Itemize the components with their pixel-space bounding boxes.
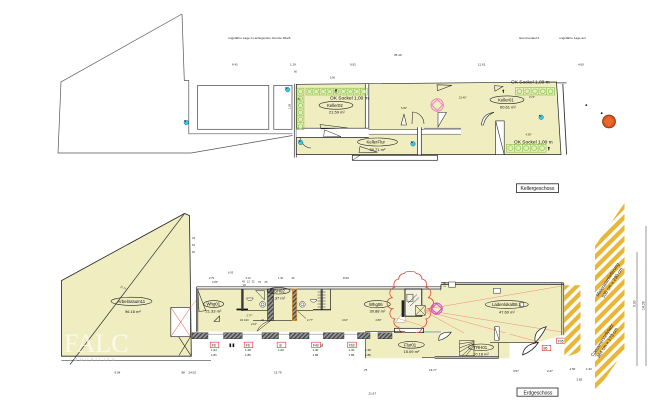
- svg-text:5.90: 5.90: [330, 75, 336, 79]
- svg-text:2.75: 2.75: [209, 276, 215, 280]
- svg-text:1.32: 1.32: [586, 367, 592, 371]
- svg-text:1.00: 1.00: [278, 348, 284, 352]
- svg-text:Whg06: Whg06: [369, 302, 383, 307]
- svg-text:3.13: 3.13: [246, 276, 252, 280]
- svg-text:2.30: 2.30: [443, 281, 447, 287]
- svg-text:Grenzverlauf lt.: Grenzverlauf lt.: [519, 36, 540, 40]
- svg-text:Ladenlokal06.1: Ladenlokal06.1: [492, 302, 522, 307]
- svg-text:30.88 m²: 30.88 m²: [370, 309, 386, 314]
- svg-text:9.30: 9.30: [632, 300, 636, 307]
- svg-text:11.61: 11.61: [478, 62, 486, 66]
- svg-text:FALC: FALC: [64, 329, 129, 358]
- svg-text:21.33 m²: 21.33 m²: [206, 308, 222, 313]
- svg-text:Arbeitsraum11: Arbeitsraum11: [118, 299, 146, 304]
- svg-text:6.41: 6.41: [232, 62, 238, 66]
- svg-text:OK Sockel 1,00 m: OK Sockel 1,00 m: [514, 139, 553, 145]
- svg-text:3.57: 3.57: [513, 369, 519, 373]
- svg-text:47.60 m²: 47.60 m²: [499, 309, 515, 314]
- svg-text:3.10°: 3.10°: [342, 318, 348, 322]
- svg-text:B6: B6: [544, 347, 548, 351]
- svg-text:1.40: 1.40: [278, 276, 284, 280]
- svg-text:5.36°: 5.36°: [401, 106, 407, 110]
- svg-text:3.25°: 3.25°: [212, 280, 218, 284]
- svg-text:1.50: 1.50: [570, 367, 576, 371]
- svg-text:TRH01: TRH01: [474, 345, 488, 350]
- svg-text:2.77°: 2.77°: [247, 314, 253, 318]
- svg-text:Whg01: Whg01: [207, 302, 221, 307]
- svg-text:21.67: 21.67: [369, 392, 377, 396]
- svg-text:24.02: 24.02: [189, 370, 197, 374]
- svg-text:1.04: 1.04: [211, 348, 217, 352]
- svg-text:1.86: 1.86: [365, 353, 371, 357]
- svg-text:40 1/16: 40 1/16: [240, 318, 249, 322]
- svg-text:4.60: 4.60: [578, 62, 584, 66]
- svg-text:F95: F95: [558, 339, 564, 343]
- svg-text:Kellergeschoss: Kellergeschoss: [521, 186, 555, 192]
- svg-text:1.28: 1.28: [245, 348, 251, 352]
- svg-text:1.86: 1.86: [349, 353, 355, 357]
- svg-text:B: B: [280, 343, 282, 347]
- svg-text:2.10°: 2.10°: [251, 322, 257, 326]
- svg-text:F63: F63: [349, 343, 355, 347]
- svg-text:Erdgeschoss: Erdgeschoss: [524, 390, 553, 396]
- svg-text:1.81: 1.81: [211, 353, 217, 357]
- svg-text:WBH02: WBH02: [270, 288, 285, 293]
- svg-text:F43: F43: [313, 343, 319, 347]
- svg-text:4.39°: 4.39°: [526, 133, 532, 137]
- svg-text:60.61 m²: 60.61 m²: [500, 104, 516, 109]
- svg-text:2.77°: 2.77°: [307, 318, 313, 322]
- svg-text:IMMOBILIEN: IMMOBILIEN: [70, 357, 117, 362]
- svg-text:ungefähre Lage anl: ungefähre Lage anl: [559, 36, 586, 40]
- svg-text:1.30: 1.30: [313, 348, 319, 352]
- svg-text:96.16 m²: 96.16 m²: [125, 309, 141, 314]
- svg-text:1.36: 1.36: [365, 348, 371, 352]
- svg-text:F6: F6: [246, 343, 250, 347]
- svg-text:2.89°: 2.89°: [376, 318, 382, 322]
- svg-text:14.09: 14.09: [641, 301, 645, 310]
- svg-text:1.58: 1.58: [288, 103, 292, 109]
- svg-text:30.71 m²: 30.71 m²: [370, 147, 386, 152]
- svg-text:2.82: 2.82: [577, 378, 583, 382]
- svg-text:10.18 m²: 10.18 m²: [473, 352, 489, 357]
- svg-text:1.86: 1.86: [245, 353, 251, 357]
- svg-text:ungefähre Lage zu anliegender: ungefähre Lage zu anliegender Grenze 46a…: [228, 36, 291, 40]
- svg-text:75: 75: [364, 368, 368, 372]
- svg-text:9.92: 9.92: [350, 62, 356, 66]
- svg-text:1.30: 1.30: [349, 348, 355, 352]
- svg-text:13.77: 13.77: [429, 368, 437, 372]
- svg-text:1.86: 1.86: [313, 353, 319, 357]
- svg-text:Flur01: Flur01: [404, 342, 417, 347]
- svg-text:1.19: 1.19: [290, 62, 296, 66]
- svg-text:F6: F6: [212, 343, 216, 347]
- svg-text:98: 98: [182, 370, 186, 374]
- svg-text:15.09 m²: 15.09 m²: [404, 349, 420, 354]
- svg-text:Keller02: Keller02: [327, 103, 343, 108]
- svg-text:21.59 m²: 21.59 m²: [329, 110, 345, 115]
- svg-text:OK Sockel 1,00 m: OK Sockel 1,00 m: [511, 80, 550, 86]
- svg-text:5.37 m²: 5.37 m²: [272, 295, 286, 300]
- svg-text:2.27: 2.27: [547, 369, 553, 373]
- svg-text:15.40°: 15.40°: [459, 96, 467, 100]
- svg-text:OK Sockel 1,00 m: OK Sockel 1,00 m: [330, 96, 369, 102]
- svg-text:6.03: 6.03: [228, 270, 234, 274]
- svg-text:KellerFlur: KellerFlur: [367, 140, 386, 145]
- svg-text:8.00: 8.00: [343, 276, 349, 280]
- svg-text:9.04: 9.04: [115, 370, 121, 374]
- svg-text:13.79: 13.79: [274, 370, 282, 374]
- svg-text:35.49: 35.49: [394, 53, 402, 57]
- svg-text:3.72°: 3.72°: [529, 95, 535, 99]
- svg-text:Keller01: Keller01: [498, 97, 514, 102]
